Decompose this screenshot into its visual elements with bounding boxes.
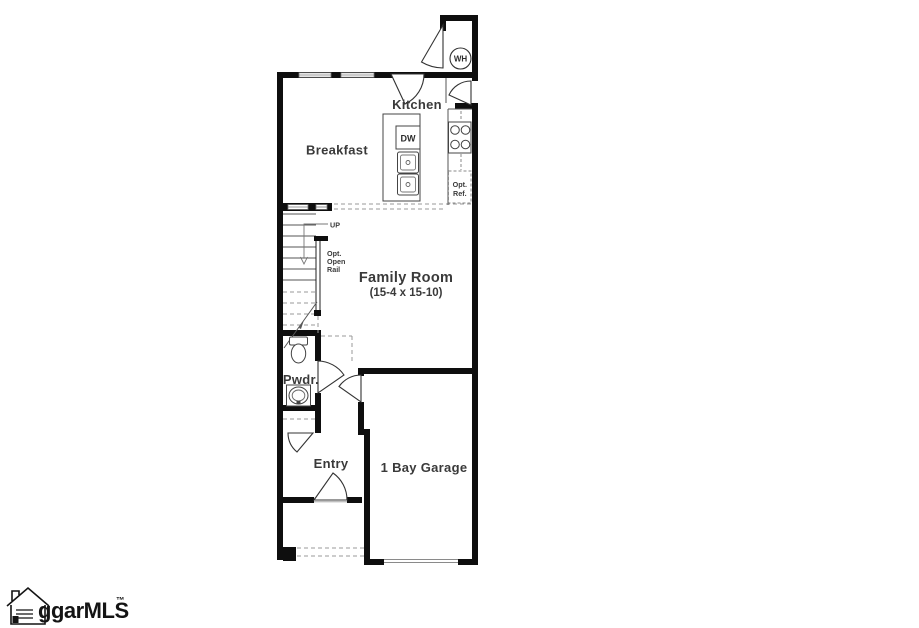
wall-garage-left-lower bbox=[364, 429, 370, 565]
porch-lines bbox=[283, 547, 364, 561]
watermark-trademark: ™ bbox=[116, 595, 125, 605]
rail-note-line3: Rail bbox=[327, 265, 340, 274]
window-top-2 bbox=[341, 73, 374, 77]
kitchen-label: Kitchen bbox=[392, 97, 442, 112]
powder-optional-dashes bbox=[321, 336, 352, 362]
wall-powder-right-upper bbox=[315, 330, 321, 361]
entry-label: Entry bbox=[314, 456, 349, 471]
family-room-label: Family Room bbox=[359, 270, 453, 286]
dishwasher-icon: DW bbox=[396, 126, 420, 149]
powder-label: Pwdr. bbox=[283, 372, 319, 387]
wall-garage-left-mid bbox=[358, 402, 364, 432]
water-heater-icon: WH bbox=[450, 48, 471, 69]
floor-plan-image: Opt. Ref. DW WH bbox=[0, 0, 919, 628]
wall-entry-closet-right bbox=[315, 405, 321, 433]
kitchen-island: DW bbox=[383, 114, 420, 201]
door-powder bbox=[318, 361, 344, 393]
wall-right-upper bbox=[472, 15, 478, 81]
wall-garage-top bbox=[358, 368, 478, 374]
porch-post bbox=[283, 547, 296, 561]
floor-plan-drawing: Opt. Ref. DW WH bbox=[0, 0, 919, 628]
door-entry-closet bbox=[288, 433, 313, 452]
range-icon bbox=[449, 122, 472, 153]
wall-garage-bottom-stub-right bbox=[458, 559, 478, 565]
wall-powder-top bbox=[277, 330, 321, 336]
kitchen-sink-icon bbox=[398, 152, 419, 195]
wall-entry-bottom-right bbox=[347, 497, 362, 503]
mls-watermark: ggarMLS ™ bbox=[7, 588, 129, 624]
opt-open-rail-note: Opt. Open Rail bbox=[327, 249, 345, 274]
family-room-dimensions: (15-4 x 15-10) bbox=[370, 287, 443, 299]
opt-ref-label-line2: Ref. bbox=[453, 189, 467, 198]
door-front bbox=[314, 473, 347, 500]
stairs-up-label: UP bbox=[330, 221, 340, 230]
door-side-nook bbox=[449, 81, 471, 105]
wall-left bbox=[277, 72, 283, 560]
dishwasher-label: DW bbox=[401, 134, 416, 144]
wall-wh-closet-bottom bbox=[446, 72, 472, 78]
optional-refrigerator: Opt. Ref. bbox=[449, 171, 472, 203]
garage-label: 1 Bay Garage bbox=[381, 460, 468, 475]
window-top-1 bbox=[299, 73, 331, 77]
opt-ref-label-line1: Opt. bbox=[453, 180, 467, 189]
powder-sink-icon bbox=[287, 385, 311, 406]
toilet-icon bbox=[290, 337, 308, 363]
water-heater-label: WH bbox=[454, 55, 468, 64]
floor-transition-lines bbox=[334, 204, 472, 209]
garage-door-sill bbox=[384, 560, 458, 563]
window-wall-stair bbox=[283, 203, 332, 211]
wall-entry-bottom-left bbox=[277, 497, 314, 503]
door-garage bbox=[339, 375, 361, 402]
interior-walls bbox=[277, 330, 478, 565]
door-wh-closet bbox=[422, 25, 444, 68]
breakfast-label: Breakfast bbox=[306, 143, 368, 158]
stairs: UP Opt. Open Rail bbox=[283, 214, 345, 348]
wall-right-lower bbox=[472, 103, 478, 565]
